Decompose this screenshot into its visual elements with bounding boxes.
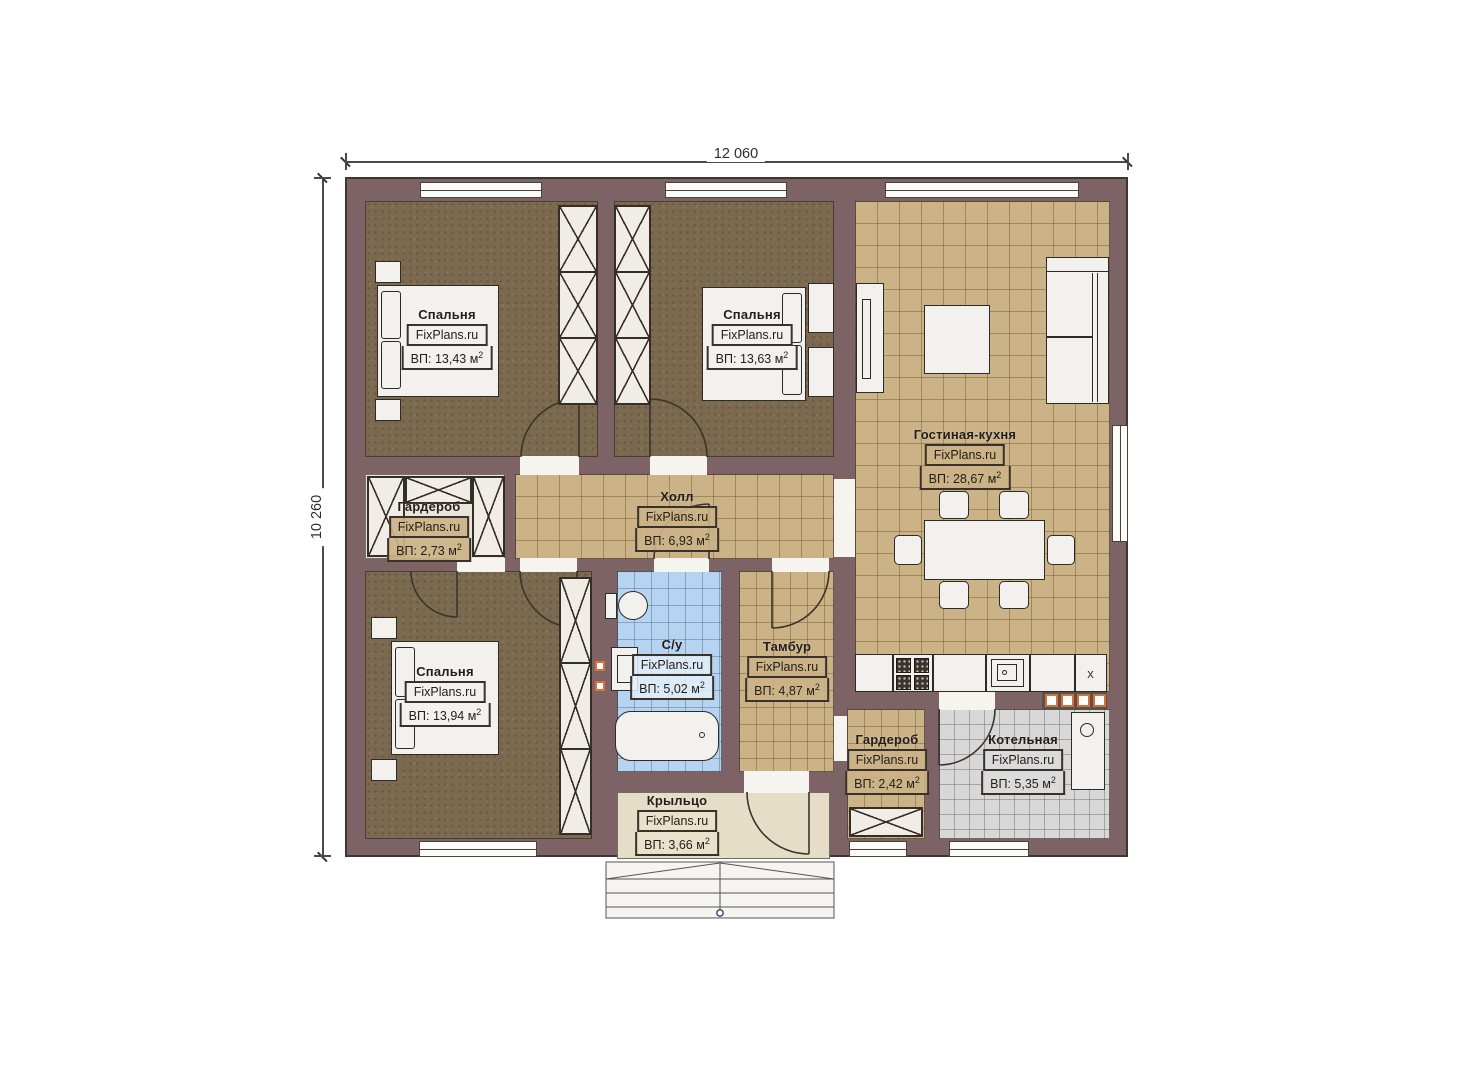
room-name: Спальня xyxy=(416,664,474,679)
room-label-hall: Холл FixPlans.ru ВП: 6,93 м2 xyxy=(635,489,719,552)
boiler-dial xyxy=(1080,723,1094,737)
door-arc-bedroom-1 xyxy=(521,399,579,457)
room-area: ВП: 13,63 м2 xyxy=(707,346,798,370)
porch-steps xyxy=(605,861,835,919)
watermark-fixplans: FixPlans.ru xyxy=(632,654,713,676)
floor-plan-page: 12 060 10 260 xyxy=(0,0,1473,1080)
tv-panel xyxy=(862,299,871,379)
window-bottom-2 xyxy=(849,841,907,857)
accent-square xyxy=(1093,694,1106,707)
room-name: Крыльцо xyxy=(647,793,708,808)
toilet-tank xyxy=(605,593,617,619)
window-top-2 xyxy=(665,182,787,198)
dimension-end xyxy=(1127,153,1129,170)
room-label-vestibule: Тамбур FixPlans.ru ВП: 4,87 м2 xyxy=(745,639,829,702)
closet-wardrobe-2 xyxy=(849,807,923,837)
room-label-porch: Крыльцо FixPlans.ru ВП: 3,66 м2 xyxy=(635,793,719,856)
door-opening-hall-bedroom-3 xyxy=(520,558,577,572)
room-name: Котельная xyxy=(988,732,1058,747)
accent-square xyxy=(1045,694,1058,707)
room-area: ВП: 13,43 м2 xyxy=(402,346,493,370)
accent-square xyxy=(1077,694,1090,707)
room-area: ВП: 3,66 м2 xyxy=(635,832,719,856)
watermark-fixplans: FixPlans.ru xyxy=(637,506,718,528)
stove-burner xyxy=(914,675,929,690)
stove-burner xyxy=(896,658,911,673)
counter-divider xyxy=(892,655,894,691)
door-opening-hall-bedroom-1 xyxy=(520,456,579,475)
room-area: ВП: 13,94 м2 xyxy=(400,703,491,727)
pillow xyxy=(381,291,401,339)
watermark-fixplans: FixPlans.ru xyxy=(747,656,828,678)
sofa-cushion-line xyxy=(1047,336,1092,338)
room-area: ВП: 2,73 м2 xyxy=(387,538,471,562)
coffee-table xyxy=(924,305,990,374)
room-name: Спальня xyxy=(418,307,476,322)
closet-bedroom-1 xyxy=(558,205,598,405)
room-area: ВП: 5,02 м2 xyxy=(630,676,714,700)
window-right xyxy=(1112,425,1128,542)
nightstand xyxy=(375,399,401,421)
counter-divider xyxy=(932,655,934,691)
closet-bedroom-2 xyxy=(614,205,651,405)
dining-chair xyxy=(894,535,922,565)
watermark-fixplans: FixPlans.ru xyxy=(389,516,470,538)
door-opening-hall-vestibule xyxy=(772,558,829,572)
plumbing-riser-marker xyxy=(595,661,605,671)
window-bottom-3 xyxy=(949,841,1029,857)
window-bottom-1 xyxy=(419,841,537,857)
watermark-fixplans: FixPlans.ru xyxy=(983,749,1064,771)
room-area: ВП: 5,35 м2 xyxy=(981,771,1065,795)
dimension-end xyxy=(345,153,347,170)
stove-burner xyxy=(896,675,911,690)
house-plan: x Спа xyxy=(345,177,1128,857)
watermark-fixplans: FixPlans.ru xyxy=(847,749,928,771)
accent-square xyxy=(1061,694,1074,707)
sofa-back-line xyxy=(1092,273,1098,402)
room-label-bedroom-1: Спальня FixPlans.ru ВП: 13,43 м2 xyxy=(402,307,493,370)
closet-wardrobe-1-right xyxy=(472,476,505,557)
watermark-fixplans: FixPlans.ru xyxy=(712,324,793,346)
watermark-fixplans: FixPlans.ru xyxy=(405,681,486,703)
dining-chair xyxy=(1047,535,1075,565)
room-name: Холл xyxy=(660,489,693,504)
room-area: ВП: 2,42 м2 xyxy=(845,771,929,795)
toilet-bowl xyxy=(618,591,648,620)
watermark-fixplans: FixPlans.ru xyxy=(407,324,488,346)
room-name: Тамбур xyxy=(763,639,811,654)
plumbing-riser-marker xyxy=(595,681,605,691)
door-opening-kitchen-boiler xyxy=(939,691,995,710)
kitchen-sink-basin xyxy=(997,664,1017,681)
door-arc-bedroom-2 xyxy=(650,399,707,457)
nightstand xyxy=(371,759,397,781)
room-label-living-kitchen: Гостиная-кухня FixPlans.ru ВП: 28,67 м2 xyxy=(914,427,1016,490)
opening-hall-living xyxy=(834,479,855,557)
watermark-fixplans: FixPlans.ru xyxy=(925,444,1006,466)
kitchen-corner-cabinet: x xyxy=(1074,654,1107,692)
room-label-bedroom-3: Спальня FixPlans.ru ВП: 13,94 м2 xyxy=(400,664,491,727)
dimension-width-label: 12 060 xyxy=(707,146,765,162)
window-top-3 xyxy=(885,182,1079,198)
closet-bedroom-3 xyxy=(559,577,592,835)
door-arc-vestibule xyxy=(772,571,829,628)
room-name: С/у xyxy=(662,637,683,652)
room-name: Гардероб xyxy=(855,732,918,747)
bathtub-drain xyxy=(699,732,705,738)
kitchen-faucet xyxy=(1002,670,1007,675)
window-top-1 xyxy=(420,182,542,198)
nightstand xyxy=(371,617,397,639)
sofa xyxy=(1046,271,1109,404)
dining-chair xyxy=(939,581,969,609)
nightstand xyxy=(808,283,834,333)
room-label-bathroom: С/у FixPlans.ru ВП: 5,02 м2 xyxy=(630,637,714,700)
entrance-door-opening xyxy=(744,771,809,793)
room-label-wardrobe-1: Гардероб FixPlans.ru ВП: 2,73 м2 xyxy=(387,499,471,562)
door-opening-hall-bathroom xyxy=(654,558,709,572)
door-arc-entrance xyxy=(747,792,809,854)
counter-divider xyxy=(1029,655,1031,691)
counter-divider xyxy=(985,655,987,691)
room-area: ВП: 4,87 м2 xyxy=(745,678,829,702)
pillow xyxy=(381,341,401,389)
door-opening-hall-bedroom-2 xyxy=(650,456,707,475)
dimension-end xyxy=(314,177,331,179)
nightstand xyxy=(808,347,834,397)
room-name: Спальня xyxy=(723,307,781,322)
room-label-boiler-room: Котельная FixPlans.ru ВП: 5,35 м2 xyxy=(981,732,1065,795)
room-area: ВП: 28,67 м2 xyxy=(920,466,1011,490)
dining-chair xyxy=(999,581,1029,609)
room-area: ВП: 6,93 м2 xyxy=(635,528,719,552)
door-arc-wardrobe-1 xyxy=(411,571,457,617)
room-label-wardrobe-2: Гардероб FixPlans.ru ВП: 2,42 м2 xyxy=(845,732,929,795)
stove-burner xyxy=(914,658,929,673)
nightstand xyxy=(375,261,401,283)
room-label-bedroom-2: Спальня FixPlans.ru ВП: 13,63 м2 xyxy=(707,307,798,370)
dimension-height-label: 10 260 xyxy=(309,488,325,546)
room-name: Гардероб xyxy=(397,499,460,514)
dining-chair xyxy=(939,491,969,519)
dining-chair xyxy=(999,491,1029,519)
watermark-fixplans: FixPlans.ru xyxy=(637,810,718,832)
wall-accent-strip xyxy=(1042,692,1107,709)
room-name: Гостиная-кухня xyxy=(914,427,1016,442)
dimension-end xyxy=(314,855,331,857)
dining-table xyxy=(924,520,1045,580)
